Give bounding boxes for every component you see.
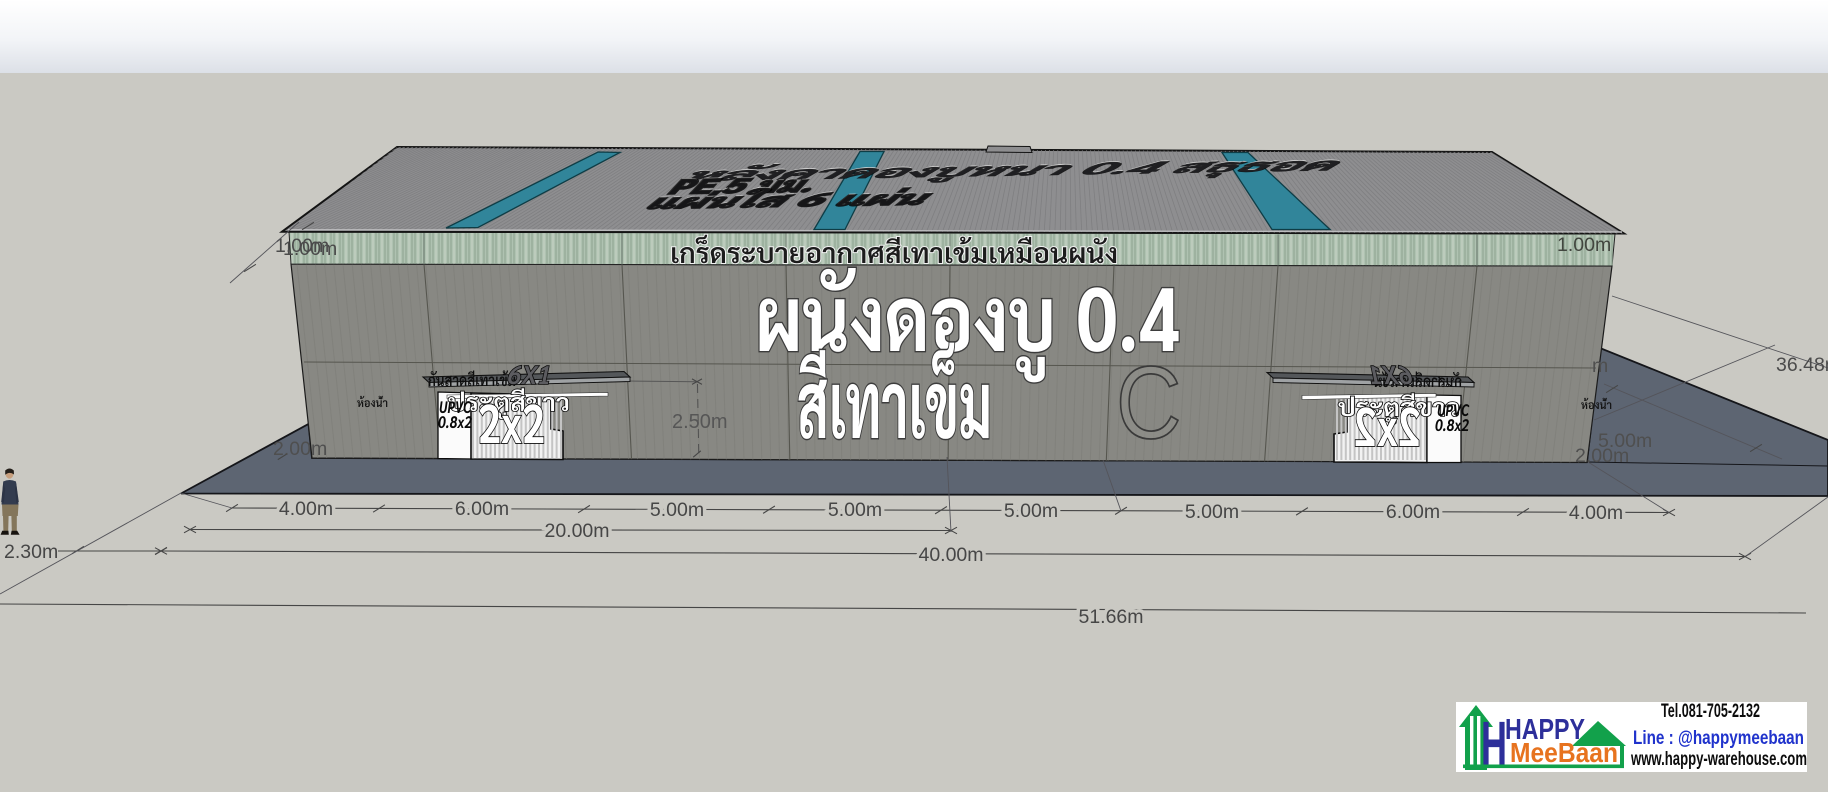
- svg-text:6.00m: 6.00m: [455, 498, 509, 520]
- svg-text:1.00m: 1.00m: [283, 238, 337, 260]
- svg-text:5.00m: 5.00m: [1004, 500, 1058, 522]
- svg-text:5.00m: 5.00m: [1185, 501, 1239, 523]
- svg-text:Tel.081-705-2132: Tel.081-705-2132: [1661, 700, 1760, 722]
- svg-text:5.00m: 5.00m: [828, 499, 882, 521]
- svg-text:51.66m: 51.66m: [1078, 606, 1143, 628]
- svg-text:4.00m: 4.00m: [1569, 502, 1623, 524]
- svg-text:H: H: [1481, 708, 1507, 780]
- svg-text:5.00m: 5.00m: [650, 499, 704, 521]
- svg-text:20.00m: 20.00m: [544, 520, 609, 542]
- svg-text:1.00m: 1.00m: [1557, 234, 1611, 256]
- svg-text:4.00m: 4.00m: [279, 498, 333, 520]
- svg-text:m: m: [1592, 355, 1608, 377]
- svg-text:2.00m: 2.00m: [1575, 445, 1629, 467]
- svg-text:Line : @happymeebaan: Line : @happymeebaan: [1633, 727, 1804, 749]
- svg-text:MeeBaan: MeeBaan: [1510, 737, 1618, 768]
- svg-text:36.48m: 36.48m: [1776, 354, 1828, 376]
- svg-text:2.00m: 2.00m: [273, 438, 327, 460]
- svg-text:6.00m: 6.00m: [1386, 501, 1440, 523]
- svg-text:C: C: [1116, 345, 1181, 461]
- svg-text:2.50m: 2.50m: [672, 411, 728, 433]
- svg-text:www.happy-warehouse.com: www.happy-warehouse.com: [1630, 749, 1807, 770]
- svg-text:40.00m: 40.00m: [918, 544, 983, 566]
- svg-text:2.30m: 2.30m: [4, 541, 58, 563]
